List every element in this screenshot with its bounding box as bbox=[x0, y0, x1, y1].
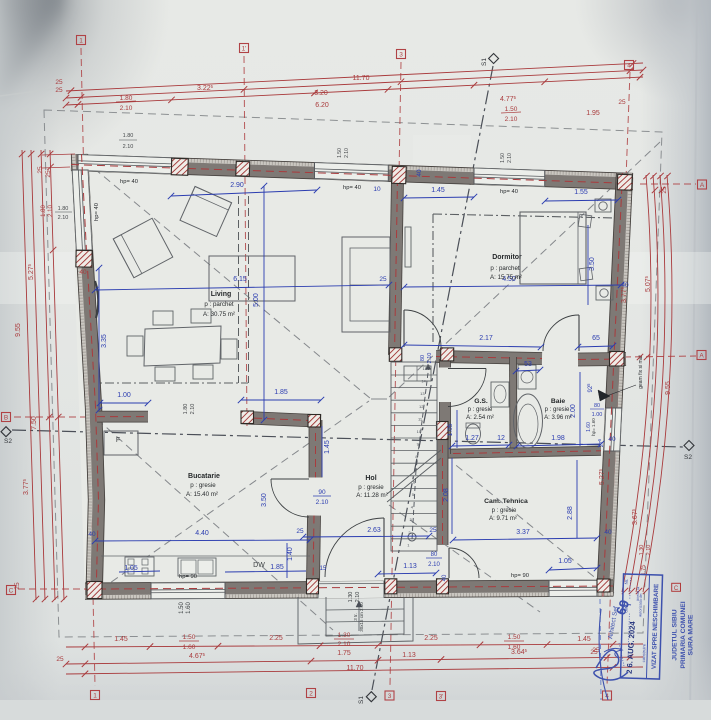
svg-text:Nr.: Nr. bbox=[624, 579, 629, 585]
svg-text:2.10: 2.10 bbox=[428, 562, 440, 568]
svg-text:S1: S1 bbox=[358, 696, 365, 704]
svg-text:40: 40 bbox=[442, 574, 448, 581]
svg-text:1.45: 1.45 bbox=[577, 636, 591, 643]
svg-text:25: 25 bbox=[37, 166, 44, 174]
svg-text:2.10: 2.10 bbox=[58, 215, 69, 221]
svg-text:25: 25 bbox=[661, 186, 668, 194]
svg-text:3.50: 3.50 bbox=[589, 257, 596, 271]
svg-text:Bucatarie: Bucatarie bbox=[188, 473, 220, 480]
svg-text:1.05: 1.05 bbox=[558, 558, 572, 565]
svg-text:A: 15.40 m²: A: 15.40 m² bbox=[186, 491, 218, 498]
svg-text:80: 80 bbox=[420, 355, 426, 361]
svg-text:40: 40 bbox=[608, 436, 616, 443]
svg-text:10: 10 bbox=[417, 429, 422, 434]
svg-text:1.30: 1.30 bbox=[338, 632, 351, 639]
svg-text:S2: S2 bbox=[684, 454, 692, 461]
svg-text:A: A bbox=[699, 352, 704, 359]
svg-text:25: 25 bbox=[379, 276, 387, 283]
svg-text:3 tr.: 3 tr. bbox=[353, 613, 358, 621]
svg-text:A: 15.75 m²: A: 15.75 m² bbox=[490, 274, 522, 281]
svg-text:1.75: 1.75 bbox=[337, 650, 351, 657]
svg-text:25: 25 bbox=[296, 528, 304, 535]
svg-text:30x15 cm 2.10: 30x15 cm 2.10 bbox=[359, 602, 364, 632]
svg-text:1.80: 1.80 bbox=[58, 206, 69, 212]
svg-text:hp= 40: hp= 40 bbox=[94, 203, 100, 221]
svg-text:2.25: 2.25 bbox=[424, 635, 438, 642]
svg-text:25: 25 bbox=[618, 99, 626, 106]
svg-text:1.40: 1.40 bbox=[287, 547, 294, 561]
svg-text:3': 3' bbox=[439, 693, 444, 700]
svg-text:hp= 40: hp= 40 bbox=[120, 179, 138, 185]
svg-text:1.85: 1.85 bbox=[270, 564, 284, 571]
svg-text:3.35: 3.35 bbox=[101, 334, 108, 348]
svg-text:25: 25 bbox=[590, 649, 598, 656]
svg-text:3: 3 bbox=[399, 51, 403, 58]
svg-text:53: 53 bbox=[524, 361, 532, 368]
svg-text:2.10: 2.10 bbox=[120, 105, 133, 112]
svg-text:12: 12 bbox=[419, 404, 424, 409]
svg-text:1.45: 1.45 bbox=[431, 187, 445, 194]
svg-text:S2: S2 bbox=[4, 438, 12, 445]
svg-text:1.13: 1.13 bbox=[402, 652, 416, 659]
svg-text:1.50: 1.50 bbox=[508, 634, 521, 641]
svg-text:40: 40 bbox=[416, 169, 423, 177]
svg-text:1.60: 1.60 bbox=[183, 644, 196, 651]
svg-text:1.05: 1.05 bbox=[447, 423, 454, 436]
svg-text:A: 30.75 m²: A: 30.75 m² bbox=[203, 311, 235, 318]
svg-text:2.10: 2.10 bbox=[123, 144, 134, 150]
svg-text:9.55: 9.55 bbox=[665, 381, 672, 395]
svg-text:1.80: 1.80 bbox=[41, 205, 47, 217]
svg-text:1: 1 bbox=[79, 37, 83, 44]
svg-text:1.80: 1.80 bbox=[123, 133, 134, 139]
svg-text:p : gresie: p : gresie bbox=[492, 508, 517, 514]
svg-text:2.25: 2.25 bbox=[269, 635, 283, 642]
svg-text:10: 10 bbox=[373, 186, 381, 193]
svg-text:1.45: 1.45 bbox=[324, 440, 331, 454]
svg-text:1.00: 1.00 bbox=[117, 392, 131, 399]
svg-text:7.50: 7.50 bbox=[31, 416, 38, 430]
svg-text:2.10: 2.10 bbox=[427, 353, 433, 364]
svg-text:A: 11.28 m²: A: 11.28 m² bbox=[356, 492, 388, 499]
svg-text:25: 25 bbox=[56, 656, 64, 663]
svg-text:40: 40 bbox=[88, 531, 96, 538]
svg-text:80: 80 bbox=[431, 552, 438, 558]
svg-text:1.95: 1.95 bbox=[586, 110, 600, 117]
svg-text:C: C bbox=[674, 586, 679, 592]
svg-text:15: 15 bbox=[320, 566, 327, 572]
svg-text:p : gresie: p : gresie bbox=[190, 482, 216, 489]
svg-text:1.50: 1.50 bbox=[337, 148, 343, 158]
svg-text:DW: DW bbox=[253, 562, 265, 569]
svg-text:2.10: 2.10 bbox=[505, 116, 518, 123]
svg-text:C: C bbox=[9, 587, 14, 594]
svg-text:2.10: 2.10 bbox=[48, 205, 54, 217]
svg-text:5.00: 5.00 bbox=[253, 293, 260, 307]
svg-text:1.00: 1.00 bbox=[592, 412, 603, 418]
svg-text:1.80: 1.80 bbox=[183, 404, 189, 415]
svg-text:1.98: 1.98 bbox=[551, 435, 565, 442]
svg-text:15: 15 bbox=[422, 366, 427, 371]
svg-text:geam fix si mat: geam fix si mat bbox=[638, 355, 644, 389]
svg-text:1.60: 1.60 bbox=[186, 602, 192, 614]
svg-text:F: F bbox=[116, 437, 120, 444]
svg-text:65: 65 bbox=[592, 335, 600, 342]
svg-text:40: 40 bbox=[604, 529, 612, 536]
svg-text:1.85: 1.85 bbox=[274, 389, 288, 396]
svg-text:25: 25 bbox=[55, 79, 63, 86]
svg-text:1.45: 1.45 bbox=[114, 636, 128, 643]
svg-text:2.10: 2.10 bbox=[646, 545, 652, 556]
svg-text:11.70: 11.70 bbox=[347, 665, 364, 672]
svg-text:B: B bbox=[4, 414, 8, 421]
svg-text:PRIMARIA COMUNEI: PRIMARIA COMUNEI bbox=[680, 601, 687, 668]
svg-text:4.40: 4.40 bbox=[195, 530, 209, 537]
svg-text:2.10: 2.10 bbox=[316, 499, 329, 506]
svg-text:2.10: 2.10 bbox=[355, 592, 361, 603]
svg-text:4: 4 bbox=[627, 62, 631, 69]
svg-text:1.50: 1.50 bbox=[183, 634, 196, 641]
svg-text:G.S.: G.S. bbox=[474, 398, 488, 405]
svg-text:2.17: 2.17 bbox=[479, 335, 493, 342]
svg-text:90: 90 bbox=[318, 489, 326, 496]
svg-text:1.13: 1.13 bbox=[403, 563, 417, 570]
svg-text:3.37: 3.37 bbox=[516, 529, 530, 536]
svg-text:3: 3 bbox=[388, 693, 392, 700]
svg-text:80: 80 bbox=[594, 403, 600, 409]
svg-text:hp= 1.60: hp= 1.60 bbox=[591, 418, 596, 436]
svg-text:p : parchet: p : parchet bbox=[204, 301, 234, 308]
svg-text:construire: construire bbox=[641, 643, 647, 662]
svg-text:2.10: 2.10 bbox=[507, 153, 513, 163]
svg-text:hp= 40: hp= 40 bbox=[343, 185, 361, 191]
svg-text:3.50: 3.50 bbox=[261, 493, 268, 507]
svg-text:1.27: 1.27 bbox=[465, 435, 479, 442]
svg-text:S1: S1 bbox=[481, 58, 488, 66]
svg-text:1.50: 1.50 bbox=[179, 602, 185, 614]
svg-text:p : parchet: p : parchet bbox=[490, 265, 520, 272]
svg-text:12: 12 bbox=[497, 435, 505, 442]
svg-text:hp= 90: hp= 90 bbox=[179, 574, 197, 580]
svg-text:2: 2 bbox=[309, 690, 313, 697]
svg-text:A: 3.96 m²: A: 3.96 m² bbox=[544, 415, 572, 421]
svg-text:6.15: 6.15 bbox=[233, 276, 247, 283]
svg-text:1.05: 1.05 bbox=[124, 565, 138, 572]
svg-text:1.30: 1.30 bbox=[348, 592, 354, 603]
svg-text:1.50: 1.50 bbox=[500, 153, 506, 163]
svg-text:13: 13 bbox=[420, 391, 425, 396]
svg-text:1: 1 bbox=[93, 692, 97, 699]
svg-text:25: 25 bbox=[55, 87, 63, 94]
svg-text:hp= 90: hp= 90 bbox=[511, 573, 529, 579]
svg-text:2.08: 2.08 bbox=[443, 488, 450, 502]
svg-text:p : gresie: p : gresie bbox=[358, 484, 384, 491]
svg-text:2.88: 2.88 bbox=[567, 506, 574, 520]
svg-text:9.55: 9.55 bbox=[15, 323, 22, 337]
svg-text:2.10: 2.10 bbox=[344, 148, 350, 158]
svg-text:hp= 40: hp= 40 bbox=[500, 189, 518, 195]
svg-text:A: A bbox=[700, 182, 705, 189]
svg-text:Baie: Baie bbox=[551, 398, 566, 405]
svg-text:25: 25 bbox=[45, 170, 52, 178]
svg-text:Cam. Tehnica: Cam. Tehnica bbox=[484, 498, 528, 505]
svg-text:A: 2.54 m²: A: 2.54 m² bbox=[466, 415, 494, 421]
svg-text:40: 40 bbox=[79, 269, 87, 276]
svg-text:2.90: 2.90 bbox=[230, 182, 244, 189]
svg-text:p : gresie: p : gresie bbox=[468, 407, 493, 413]
svg-text:1.55: 1.55 bbox=[574, 189, 588, 196]
svg-text:2.10: 2.10 bbox=[190, 404, 196, 415]
svg-text:autorizatia de:: autorizatia de: bbox=[638, 593, 643, 617]
svg-text:Hol: Hol bbox=[365, 475, 376, 482]
svg-text:1': 1' bbox=[242, 45, 247, 52]
svg-text:p : gresie: p : gresie bbox=[545, 407, 570, 413]
svg-text:SURA MARE: SURA MARE bbox=[688, 614, 695, 655]
svg-text:A: 9.71 m²: A: 9.71 m² bbox=[489, 516, 517, 522]
svg-text:25: 25 bbox=[429, 527, 437, 534]
svg-text:JUDETUL SIBIU: JUDETUL SIBIU bbox=[672, 609, 679, 660]
svg-text:6.20: 6.20 bbox=[315, 102, 329, 109]
svg-text:2.10: 2.10 bbox=[338, 641, 351, 648]
svg-text:Living: Living bbox=[211, 291, 232, 298]
svg-text:1.30: 1.30 bbox=[639, 545, 645, 556]
svg-text:Dormitor: Dormitor bbox=[492, 254, 522, 261]
svg-text:2.63: 2.63 bbox=[367, 527, 381, 534]
svg-text:11.70: 11.70 bbox=[353, 75, 370, 82]
